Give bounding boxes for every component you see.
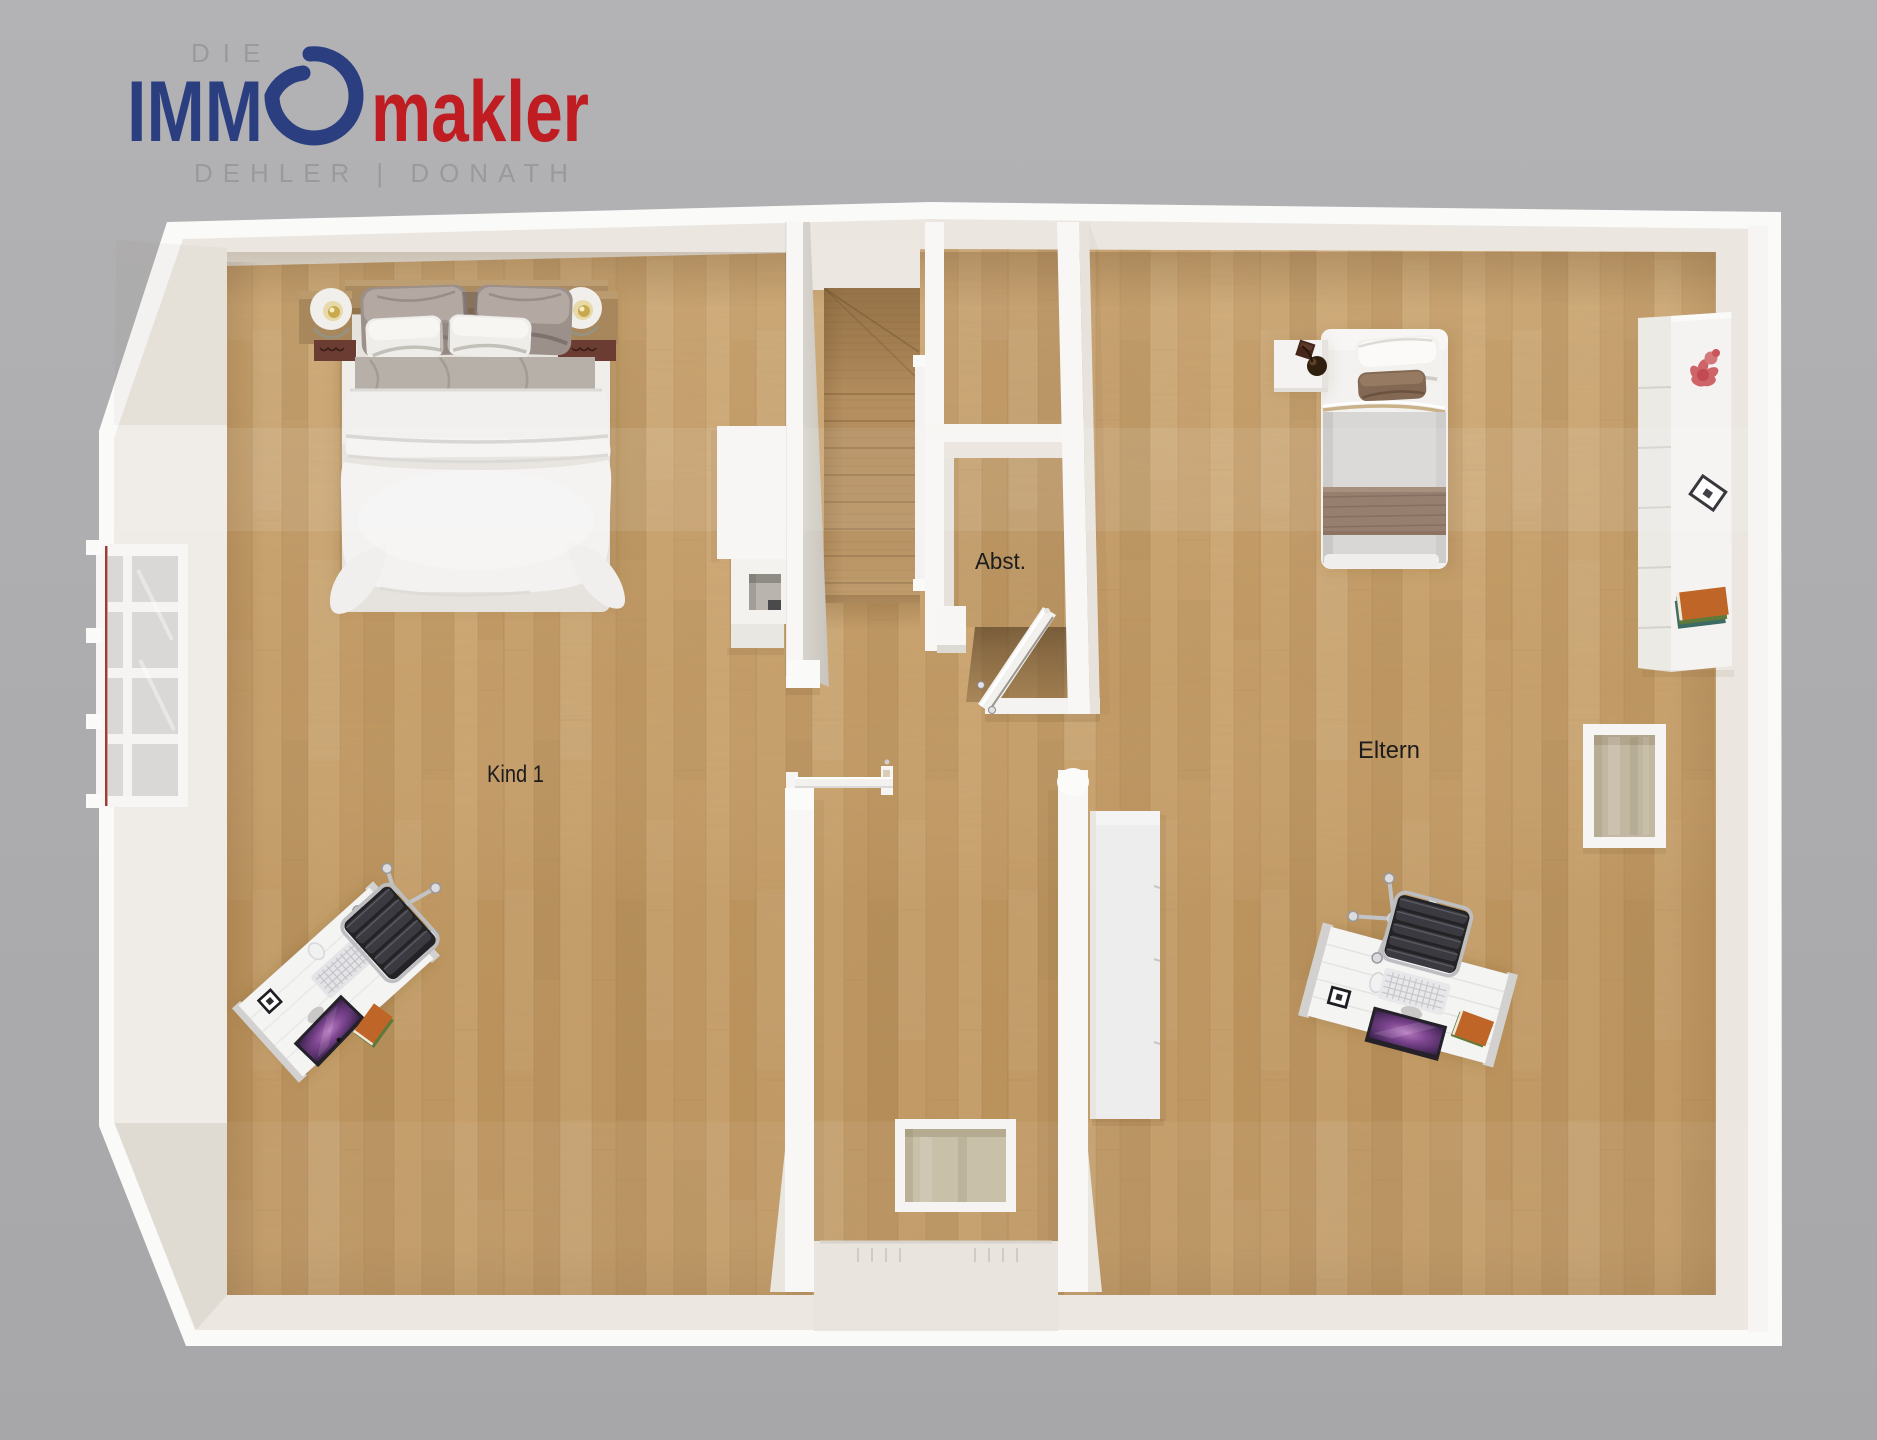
svg-text:makler: makler (371, 64, 589, 160)
svg-text:Eltern: Eltern (1358, 737, 1420, 764)
svg-text:DEHLER | DONATH: DEHLER | DONATH (194, 158, 577, 188)
svg-text:Abst.: Abst. (975, 548, 1026, 574)
svg-text:IMM: IMM (127, 64, 263, 160)
svg-text:Kind 1: Kind 1 (487, 761, 544, 788)
